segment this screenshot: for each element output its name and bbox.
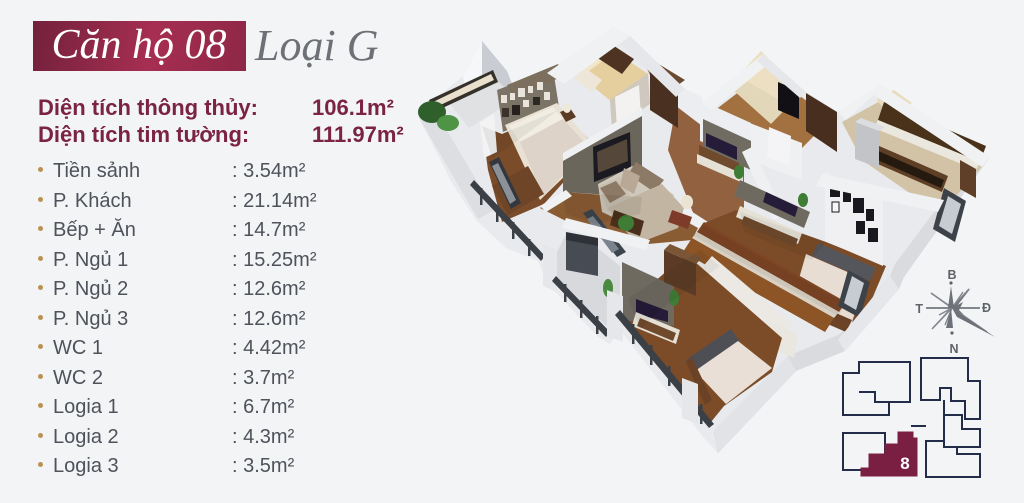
svg-text:Đ: Đ [982, 301, 991, 315]
svg-text:8: 8 [900, 454, 909, 473]
svg-text:T: T [915, 302, 923, 316]
svg-text:B: B [947, 268, 956, 282]
